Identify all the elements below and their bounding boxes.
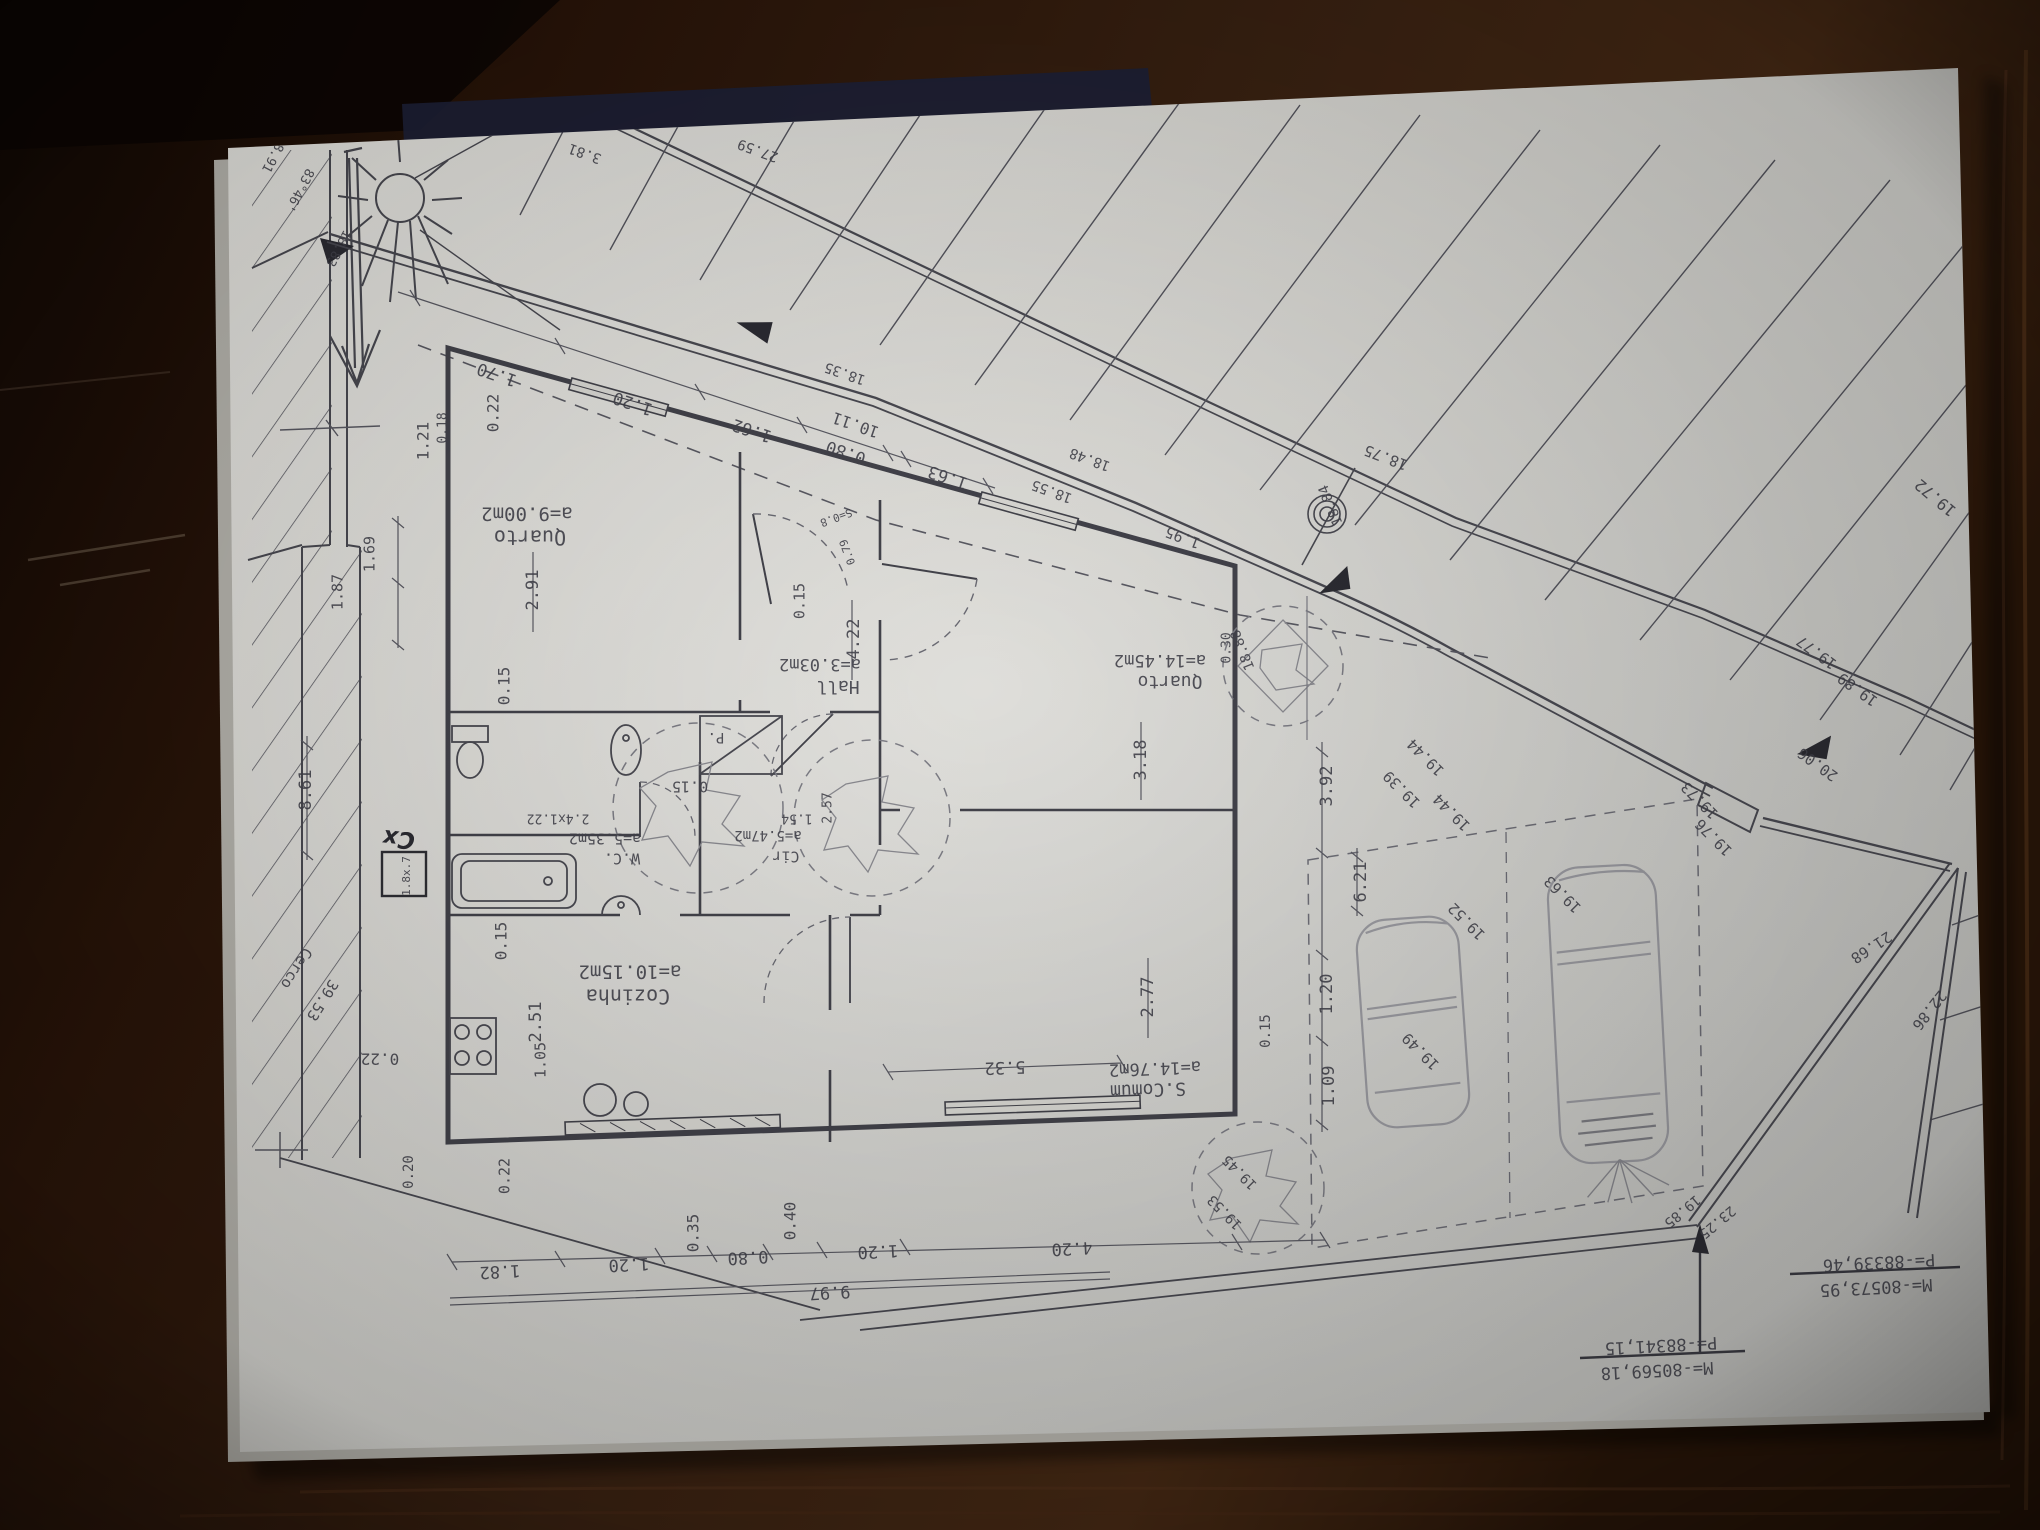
photo-vignette <box>0 0 2040 1530</box>
photo-of-floor-plan: a=9.00m2Quartoa=3.03m2Halla=14.45m2Quart… <box>0 0 2040 1530</box>
